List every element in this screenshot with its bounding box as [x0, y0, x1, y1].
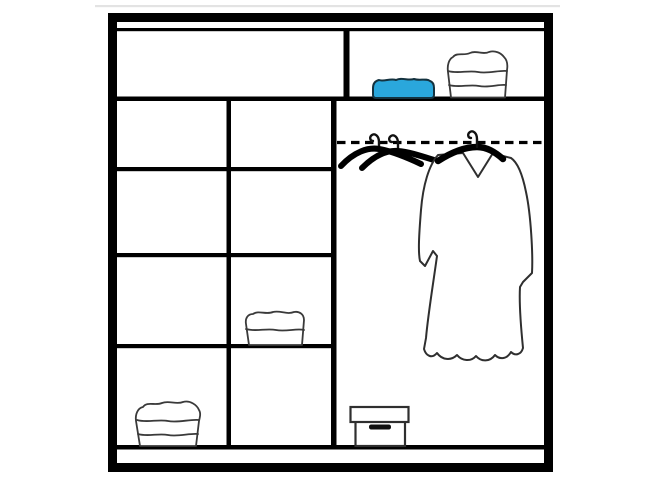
box-body — [356, 420, 406, 446]
shelf-line-2 — [117, 253, 337, 257]
shelf-column-divider — [227, 98, 232, 447]
folded-towel-stack-top — [448, 51, 508, 97]
hanging-section-divider — [331, 98, 337, 447]
towel-outline — [136, 402, 200, 446]
folded-towel-middle — [246, 312, 304, 345]
box-handle-slot — [369, 425, 391, 430]
box-lid — [351, 407, 409, 422]
towel-fold-line — [246, 329, 304, 331]
storage-box — [351, 407, 409, 446]
shelf-line-1 — [117, 167, 337, 171]
towel-outline — [246, 312, 304, 345]
wardrobe-diagram-canvas — [0, 0, 656, 492]
top-panel-line — [117, 28, 544, 31]
folded-towel-stack-bottom — [136, 402, 200, 446]
wardrobe-diagram — [0, 0, 656, 492]
page-background — [0, 0, 656, 492]
towel-outline — [448, 51, 508, 97]
top-shelf-divider — [344, 30, 350, 98]
robe-body — [419, 153, 532, 360]
top-edge-shadow — [95, 5, 560, 7]
folded-blue-garment — [373, 79, 434, 98]
shelf-line-3 — [117, 344, 337, 348]
